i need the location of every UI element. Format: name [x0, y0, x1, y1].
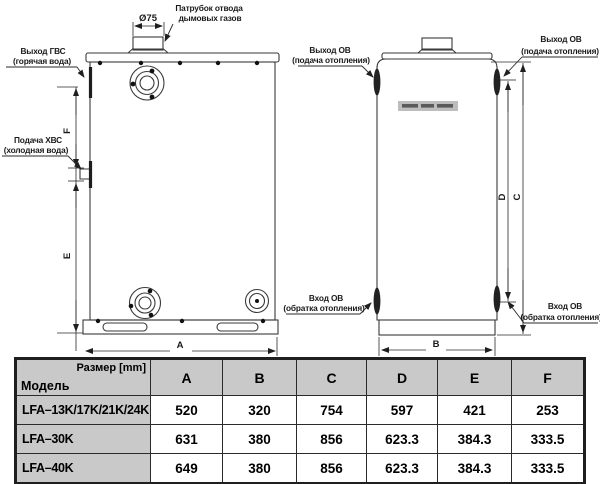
boiler-dimension-drawing: A B C D E F Ø75	[0, 0, 600, 357]
column-header-A: A	[151, 359, 223, 396]
dim-letter-C: C	[512, 193, 523, 200]
label-cold-line2: (холодная вода)	[4, 145, 69, 155]
dim-D	[500, 80, 516, 302]
cell-value: 856	[297, 454, 367, 484]
label-ch-out-mid-line1: Выход ОВ	[309, 45, 350, 55]
size-mm-label: Размер [mm]	[76, 362, 146, 374]
cell-value: 421	[438, 396, 512, 425]
side-top-plate	[382, 53, 492, 59]
label-dhw-out: Выход ГВС (горячая вода)	[13, 46, 71, 66]
cell-value: 631	[151, 425, 223, 454]
cell-value: 320	[223, 396, 297, 425]
front-view	[80, 37, 279, 334]
leader-ch-out-mid	[298, 66, 373, 77]
label-ch-out-right-line1: Выход ОВ	[540, 34, 581, 44]
side-base	[379, 320, 495, 335]
label-ch-out-right: Выход ОВ (подача отопления)	[521, 34, 599, 56]
ch-outlet-back-pipe	[494, 69, 501, 96]
label-ch-in-right-line1: Вход ОВ	[548, 301, 582, 311]
cell-value: 380	[223, 425, 297, 454]
label-ch-in-right-line2: (обратка отопления)	[520, 312, 600, 322]
cell-value: 333.5	[512, 454, 585, 484]
model-sticker	[398, 101, 458, 111]
cell-value: 333.5	[512, 425, 585, 454]
dim-letter-A: A	[177, 340, 184, 351]
dim-F-E	[57, 87, 84, 351]
front-body	[90, 62, 275, 320]
side-flue-stub	[422, 38, 452, 50]
label-flue: Патрубок отвода дымовых газов	[175, 3, 243, 23]
column-header-D: D	[367, 359, 438, 396]
cell-value: 754	[297, 396, 367, 425]
label-flue-line2: дымовых газов	[179, 13, 242, 23]
column-header-B: B	[223, 359, 297, 396]
model-label: Модель	[21, 379, 69, 393]
flange-top	[130, 66, 164, 100]
column-header-E: E	[438, 359, 512, 396]
table-header-row: Размер [mm] Модель A B C D E F	[16, 359, 585, 396]
side-view	[374, 38, 501, 335]
model-name: LFA–13K/17K/21K/24K	[16, 396, 151, 425]
ch-inlet-back-pipe	[494, 286, 501, 313]
leader-cold-in	[2, 156, 81, 169]
dim-letter-D: D	[497, 193, 508, 200]
label-cold-line1: Подача ХВС	[14, 135, 62, 145]
flue-stub	[133, 37, 163, 50]
label-ch-in-mid: Вход ОВ (обратка отопления)	[283, 293, 365, 313]
model-name: LFA–30K	[16, 425, 151, 454]
label-ch-in-right: Вход ОВ (обратка отопления)	[520, 301, 600, 322]
base-slot-left	[103, 323, 147, 331]
cell-value: 856	[297, 425, 367, 454]
gas-connection	[246, 290, 269, 313]
label-cold-in: Подача ХВС (холодная вода)	[4, 135, 69, 155]
cell-value: 384.3	[438, 454, 512, 484]
column-header-F: F	[512, 359, 585, 396]
dim-flue-diameter	[133, 22, 164, 36]
model-name: LFA–40K	[16, 454, 151, 484]
leader-dhw-out	[6, 67, 84, 77]
base-slot-right	[217, 323, 258, 331]
label-ch-out-mid-line2: (подача отопления)	[292, 55, 370, 65]
cold-inlet-stub	[80, 169, 90, 179]
top-plate	[86, 53, 279, 62]
cell-value: 380	[223, 454, 297, 484]
label-ch-out-mid: Выход ОВ (подача отопления)	[292, 45, 370, 65]
cell-value: 253	[512, 396, 585, 425]
dim-letter-E: E	[62, 253, 73, 259]
flange-bottom	[129, 288, 161, 319]
label-ch-in-mid-line2: (обратка отопления)	[283, 303, 365, 313]
label-dhw-line2: (горячая вода)	[13, 56, 71, 66]
table-row: LFA–30K 631 380 856 623.3 384.3 333.5	[16, 425, 585, 454]
table-row: LFA–40K 649 380 856 623.3 384.3 333.5	[16, 454, 585, 484]
label-flue-line1: Патрубок отвода	[175, 3, 243, 13]
table-row: LFA–13K/17K/21K/24K 520 320 754 597 421 …	[16, 396, 585, 425]
cell-value: 520	[151, 396, 223, 425]
column-header-C: C	[297, 359, 367, 396]
label-ch-out-right-line2: (подача отопления)	[521, 46, 599, 56]
boiler-dimensions-page: A B C D E F Ø75	[0, 0, 600, 484]
side-body	[377, 59, 497, 320]
cell-value: 623.3	[367, 454, 438, 484]
cell-value: 384.3	[438, 425, 512, 454]
cell-value: 597	[367, 396, 438, 425]
dimensions-table: Размер [mm] Модель A B C D E F LFA–13K/1…	[14, 357, 586, 484]
label-dhw-line1: Выход ГВС	[20, 46, 65, 56]
leader-ch-out-right	[504, 57, 598, 76]
leader-flue	[165, 24, 173, 41]
header-diagonal-cell: Размер [mm] Модель	[16, 359, 151, 396]
dim-letter-F: F	[62, 128, 73, 134]
label-ch-in-mid-line1: Вход ОВ	[309, 293, 343, 303]
cell-value: 623.3	[367, 425, 438, 454]
cell-value: 649	[151, 454, 223, 484]
dim-letter-B: B	[433, 339, 440, 350]
ch-inlet-front-pipe	[374, 288, 381, 315]
ch-outlet-front-pipe	[374, 69, 381, 96]
flue-diameter-label: Ø75	[139, 13, 158, 24]
